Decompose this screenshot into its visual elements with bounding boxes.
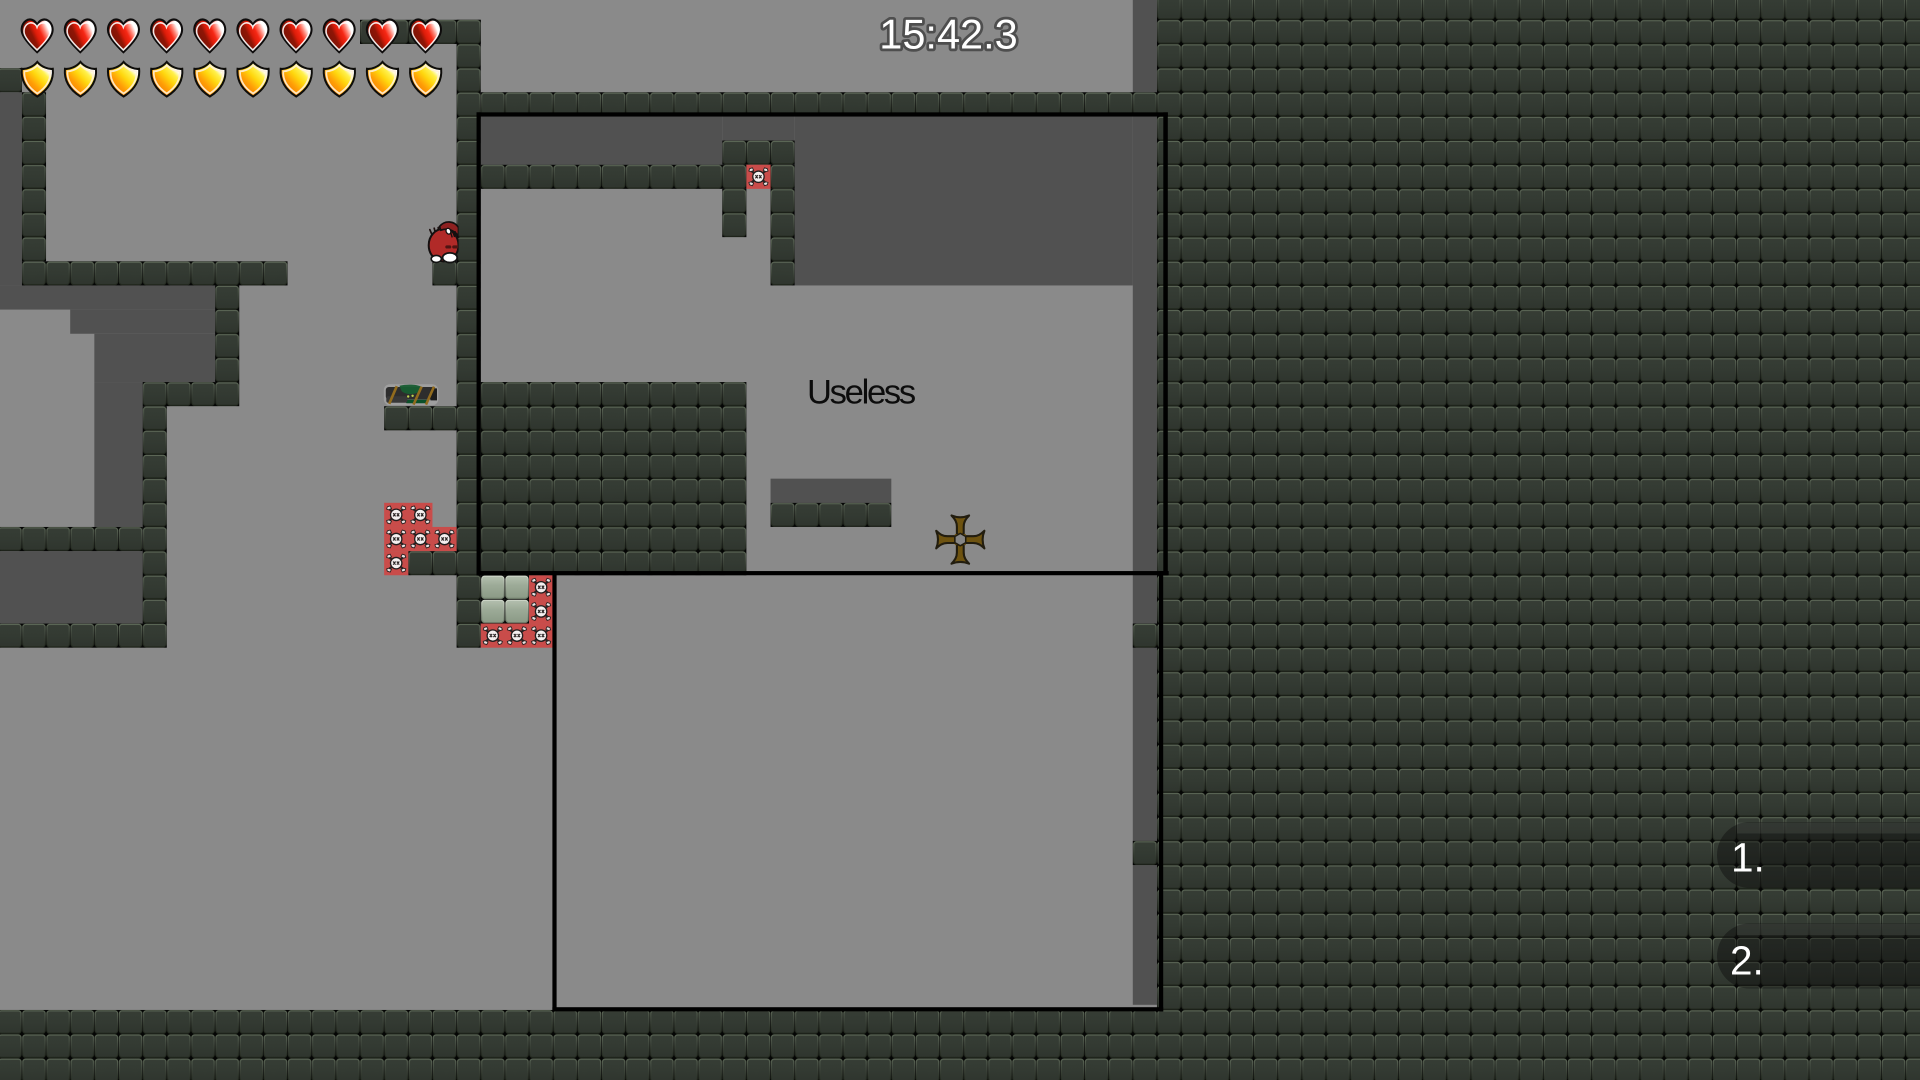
svg-text:1.: 1. — [1731, 835, 1765, 881]
svg-text:2.: 2. — [1730, 938, 1764, 984]
svg-text:15:42.3: 15:42.3 — [879, 10, 1017, 57]
svg-text:Useless: Useless — [807, 374, 916, 412]
